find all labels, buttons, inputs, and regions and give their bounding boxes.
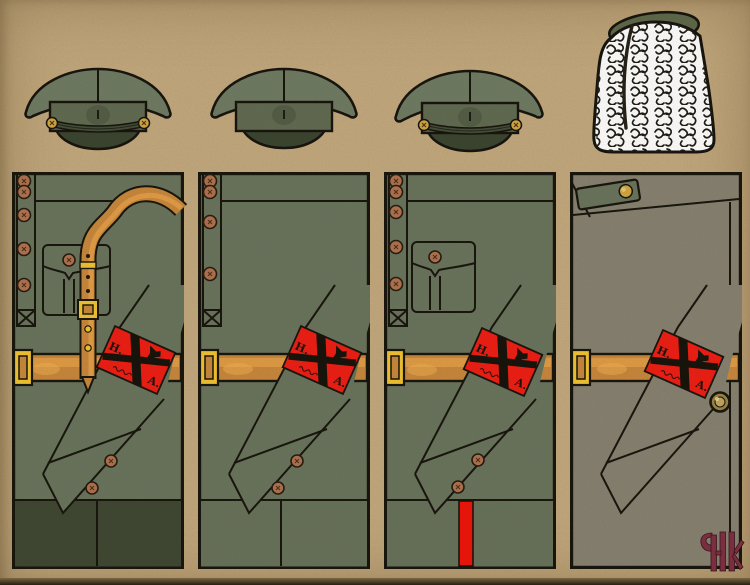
strap-keeper: [80, 262, 96, 269]
artist-monogram-logo: [698, 527, 744, 577]
strap-hole: [86, 254, 90, 258]
belt-buckle: [200, 350, 218, 385]
belt-sheen: [223, 363, 253, 375]
belt-buckle: [572, 350, 590, 385]
uniform-plate: Н. А.: [0, 0, 750, 585]
figure-panel-plain-tunic: Н. А.: [198, 172, 370, 569]
monogram-glyph: [701, 532, 744, 571]
strap-stud: [85, 326, 91, 332]
peaked-cap-plain-2: [204, 58, 364, 163]
peaked-cap-with-chinstrap-3: [390, 60, 550, 165]
belt-sheen: [407, 364, 437, 376]
figure-panel-greatcoat: Н. А.: [570, 172, 742, 569]
red-trouser-stripe: [459, 501, 473, 566]
strap-buckle-window: [83, 305, 93, 314]
papakha-fur-texture: [594, 22, 714, 152]
belt-buckle: [14, 350, 32, 385]
belt-buckle: [386, 350, 404, 385]
coat-brass-button: [711, 393, 730, 412]
figure-panel-tunic-sam-browne: Н. А.: [12, 172, 184, 569]
figure-panel-tunic-red-stripe: Н. А.: [384, 172, 556, 569]
strap-hole: [86, 275, 90, 279]
belt-sheen: [32, 363, 60, 375]
white-fur-papakha: [580, 0, 730, 160]
tunic-skirt-band: [201, 500, 367, 567]
belt-sheen: [597, 363, 627, 375]
page-bottom-edge: [0, 578, 750, 585]
strap-hole: [86, 289, 90, 293]
peaked-cap-with-chinstrap-1: [18, 58, 178, 163]
button-highlight: [715, 397, 719, 401]
strap-stud: [85, 345, 91, 351]
